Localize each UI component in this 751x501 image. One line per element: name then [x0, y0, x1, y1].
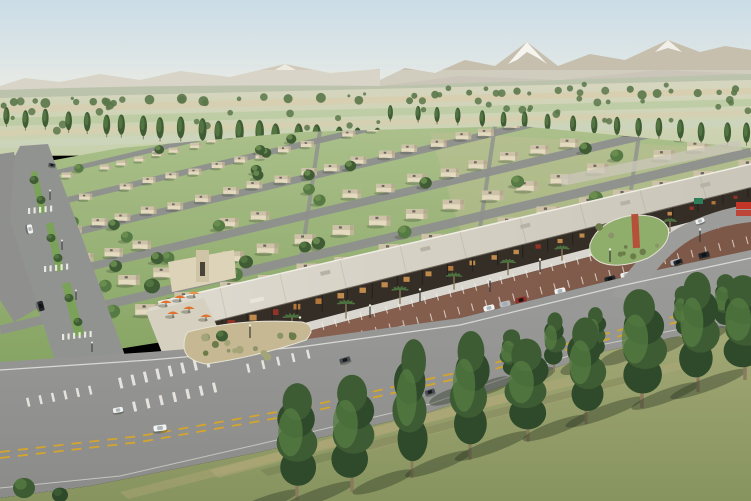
poplar-highlight	[388, 106, 391, 115]
distant-tree	[71, 97, 74, 100]
distant-tree	[552, 110, 560, 118]
villa-shade	[287, 176, 290, 183]
villa-shadow	[99, 169, 108, 171]
roof-unit	[228, 188, 230, 190]
treeline-tree	[513, 87, 520, 94]
villa-shade	[444, 140, 447, 147]
tree-highlight	[590, 192, 598, 199]
shrub	[232, 348, 237, 353]
roof-unit	[138, 242, 141, 244]
roof-unit	[125, 276, 128, 278]
tree-highlight	[622, 315, 648, 364]
median-tree-highlight	[47, 234, 52, 239]
palm-frond	[338, 303, 346, 304]
distant-tree	[376, 120, 380, 124]
crosswalk-bar	[50, 206, 52, 212]
shop-light	[690, 206, 694, 209]
poplar-highlight	[23, 112, 27, 123]
treeline-tree	[653, 89, 662, 98]
villa-shadow	[151, 156, 160, 158]
roof-unit	[146, 178, 148, 180]
roof-unit	[566, 140, 569, 142]
roof-unit	[429, 235, 432, 237]
villa-shadow	[118, 189, 129, 192]
distant-tree	[96, 108, 104, 116]
distant-tree	[11, 116, 15, 120]
distant-tree	[446, 85, 452, 91]
crosswalk-bar	[34, 207, 36, 213]
distant-tree	[593, 99, 601, 107]
umbrella-shadow	[181, 310, 191, 314]
villa-shade	[136, 275, 140, 285]
poplar-highlight	[636, 119, 640, 130]
villa-shadow	[233, 162, 244, 165]
poplar-highlight	[178, 118, 183, 132]
shrub	[630, 253, 636, 259]
villa-shade	[414, 145, 417, 152]
tree-highlight	[256, 145, 262, 150]
poplar-highlight	[725, 124, 729, 136]
villa-shade	[105, 218, 108, 225]
distant-tree	[335, 115, 341, 121]
distant-tree	[640, 99, 645, 104]
lamp-head	[91, 342, 93, 344]
villa-shade	[199, 143, 201, 148]
roof-unit	[505, 153, 508, 155]
distant-tree	[421, 107, 426, 112]
distant-tree	[28, 108, 35, 115]
villa-shadow	[116, 284, 134, 288]
distant-tree	[484, 86, 489, 91]
roof-unit	[160, 269, 163, 271]
villa-shadow	[273, 182, 286, 185]
roof-unit	[386, 245, 389, 247]
lamp-head	[489, 278, 491, 280]
villa-shade	[364, 157, 367, 164]
umbrella-shadow	[186, 295, 196, 299]
distant-tree	[555, 87, 562, 94]
distant-tree	[73, 99, 79, 105]
distant-tree	[347, 94, 350, 97]
villa-shadow	[299, 147, 310, 150]
lawn-tree-highlight	[240, 256, 248, 263]
villa-shadow	[130, 248, 145, 251]
shrub	[203, 350, 209, 356]
island-tree-highlight	[217, 331, 224, 337]
villa-shade	[575, 139, 578, 147]
roof-unit	[489, 192, 492, 194]
car-roof	[157, 426, 163, 431]
roof-unit	[406, 146, 408, 148]
villa-shade	[392, 151, 395, 158]
poplar-highlight	[435, 108, 438, 117]
roof-unit	[339, 226, 342, 228]
poplar-highlight	[199, 120, 204, 134]
villa-shadow	[528, 153, 543, 156]
villa-shade	[178, 148, 180, 153]
treeline-tree	[406, 97, 413, 104]
shop-light	[447, 266, 453, 271]
villa-shade	[236, 187, 239, 194]
tree-highlight	[75, 164, 80, 169]
roof-unit	[146, 208, 148, 210]
crosswalk-bar	[84, 332, 86, 338]
villa-shade	[109, 165, 111, 170]
distant-tree	[194, 119, 200, 125]
villa-shadow	[466, 168, 481, 171]
umbrella-shadow	[198, 318, 208, 322]
shrub	[253, 346, 258, 351]
crosswalk-bar	[90, 331, 92, 337]
distant-tree	[715, 104, 721, 110]
villa-shadow	[133, 161, 142, 163]
villa-shadow	[400, 152, 413, 155]
distant-tree	[606, 118, 612, 124]
roof-unit	[96, 219, 98, 221]
villa-shadow	[377, 158, 390, 161]
roof-unit	[329, 165, 331, 167]
tree-highlight	[420, 178, 427, 184]
distant-tree	[304, 125, 310, 131]
villa-shadow	[341, 136, 352, 139]
shrub	[624, 245, 628, 249]
tree-highlight	[512, 176, 519, 183]
shrub	[289, 332, 297, 340]
treeline-tree	[466, 90, 472, 96]
treeline-tree	[627, 86, 634, 93]
villa-shadow	[322, 171, 335, 174]
umbrella-shadow	[165, 315, 175, 319]
tree-highlight	[214, 220, 221, 226]
villa-shade	[468, 132, 471, 139]
roof-unit	[384, 152, 386, 154]
villa-shadow	[115, 165, 124, 167]
roof-unit	[557, 175, 560, 177]
shrub	[261, 350, 268, 357]
crosswalk-bar	[68, 333, 70, 339]
shop-light	[558, 239, 563, 243]
palm-frond	[447, 275, 454, 276]
distant-tree	[728, 100, 734, 106]
roof-unit	[169, 174, 171, 176]
poplar-highlight	[545, 115, 549, 126]
tree-highlight	[287, 135, 293, 140]
roof-unit	[124, 185, 126, 187]
villa-shade	[125, 161, 127, 166]
roof-unit	[110, 249, 113, 251]
villa-shadow	[102, 256, 117, 259]
tree-highlight	[725, 298, 751, 341]
villa-shadow	[205, 142, 214, 144]
shop-light	[536, 244, 541, 248]
tree-highlight	[152, 253, 159, 259]
distant-tree	[486, 102, 492, 108]
roof-unit	[382, 185, 385, 187]
crosswalk-bar	[44, 266, 46, 272]
distant-tree	[669, 118, 674, 123]
villa-shadow	[330, 234, 348, 238]
treeline-tree	[694, 89, 702, 97]
roof-unit	[346, 132, 348, 134]
roof-unit	[355, 158, 357, 160]
distant-tree	[567, 85, 573, 91]
villa-shadow	[254, 158, 265, 161]
red-banner-sign	[736, 210, 751, 216]
villa-shadow	[60, 177, 69, 179]
poplar-highlight	[455, 109, 458, 119]
shrub	[595, 223, 603, 231]
villa-shade	[491, 129, 494, 136]
roof-unit	[449, 201, 452, 203]
tree-highlight	[252, 165, 258, 170]
shop-light	[359, 288, 365, 293]
poplar-highlight	[592, 117, 596, 128]
corner-bush-highlight	[53, 488, 62, 496]
crosswalk-bar	[28, 208, 30, 214]
villa-shadow	[210, 168, 221, 171]
poplar-highlight	[522, 113, 526, 123]
villa-shade	[456, 169, 459, 177]
villa-shadow	[90, 225, 103, 228]
corner-bush-highlight	[15, 479, 27, 490]
tree-highlight	[304, 170, 310, 176]
shop-light	[425, 271, 431, 276]
roof-unit	[544, 207, 547, 209]
roof-unit	[305, 142, 307, 144]
villa-shade	[350, 225, 354, 235]
roof-unit	[256, 212, 259, 214]
villa-shade	[545, 145, 548, 153]
villa-shade	[180, 202, 183, 209]
treeline-tree	[40, 98, 50, 108]
villa-shade	[289, 146, 291, 152]
lamp-head	[249, 324, 251, 326]
crosswalk-bar	[79, 332, 81, 338]
treeline-tree	[637, 90, 646, 99]
tree-highlight	[453, 359, 475, 412]
crosswalk-bar	[62, 334, 64, 340]
villa-shade	[484, 160, 487, 168]
poplar-highlight	[571, 117, 575, 128]
shop-light	[381, 282, 387, 287]
crosswalk-bar	[50, 265, 52, 271]
tree-highlight	[155, 145, 160, 150]
roof-unit	[446, 170, 449, 172]
shop-light	[712, 201, 716, 204]
poplar-highlight	[416, 107, 419, 116]
distant-tree	[668, 89, 673, 94]
villa-shade	[148, 241, 151, 249]
villa-shadow	[164, 178, 175, 181]
pole-head	[419, 288, 421, 290]
poplar-highlight	[66, 113, 70, 125]
crosswalk-bar	[45, 206, 47, 212]
villa-shade	[515, 152, 518, 160]
villa-shadow	[139, 213, 152, 216]
villa-shadow	[141, 183, 152, 186]
poplar-highlight	[4, 109, 8, 120]
poplar-highlight	[84, 114, 88, 126]
roof-unit	[412, 210, 415, 212]
shrub	[639, 249, 646, 256]
roof-unit	[474, 161, 477, 163]
villa-shade	[235, 218, 238, 226]
green-sign	[694, 198, 703, 204]
roof-unit	[225, 219, 228, 221]
tree-highlight	[278, 408, 302, 456]
roof-unit	[142, 305, 145, 307]
villa-shadow	[374, 192, 389, 195]
distant-tree	[475, 97, 482, 104]
villa-shadow	[221, 194, 234, 197]
crosswalk-bar	[55, 265, 57, 271]
tree-highlight	[122, 232, 129, 238]
villa-shade	[500, 191, 504, 201]
shrub	[655, 244, 659, 248]
distant-tree	[260, 93, 268, 101]
tree-highlight	[304, 184, 311, 190]
villa-shade	[222, 162, 224, 168]
treeline-tree	[731, 90, 737, 96]
poplar-highlight	[678, 121, 682, 133]
poplar-highlight	[215, 122, 220, 136]
villa-shade	[130, 184, 132, 190]
roof-unit	[83, 195, 85, 197]
villa-shadow	[440, 209, 458, 213]
shop-light	[249, 315, 256, 321]
villa-shadow	[193, 202, 206, 205]
roof-unit	[436, 141, 438, 143]
villa-shadow	[78, 199, 89, 202]
tower-window	[200, 262, 205, 276]
villa-shadow	[245, 188, 258, 191]
poplar-highlight	[104, 116, 108, 128]
villa-shade	[460, 200, 464, 210]
treeline-tree	[177, 94, 187, 104]
palm-frond	[501, 262, 508, 263]
villa-shade	[423, 209, 427, 219]
villa-shadow	[514, 190, 532, 194]
shop-light	[668, 212, 672, 216]
villa-shadow	[454, 139, 467, 142]
tree-highlight	[396, 369, 416, 426]
crosswalk-bar	[73, 333, 75, 339]
distant-tree	[286, 110, 294, 118]
lamp-head	[61, 240, 63, 242]
treeline-tree	[411, 93, 417, 99]
villa-shade	[208, 195, 211, 202]
poplar-highlight	[118, 116, 122, 129]
tree-highlight	[509, 361, 534, 404]
palm-frond	[664, 220, 670, 221]
poplar-highlight	[501, 113, 504, 123]
roof-unit	[301, 235, 304, 237]
umbrella-shadow	[158, 304, 168, 308]
villa-shade	[391, 184, 394, 192]
poplar-highlight	[614, 118, 618, 129]
tree-highlight	[314, 195, 321, 201]
roof-unit	[263, 244, 266, 246]
distant-tree	[32, 98, 38, 104]
villa-shadow	[365, 131, 376, 134]
lamp-head	[699, 228, 701, 230]
roof-unit	[746, 161, 749, 163]
pole-head	[299, 316, 301, 318]
tree-highlight	[110, 261, 117, 267]
tree-highlight	[544, 325, 557, 350]
tree-highlight	[680, 298, 703, 347]
distant-tree	[576, 96, 582, 102]
distant-tree	[503, 105, 510, 112]
distant-tree	[745, 107, 751, 114]
villa-shadow	[405, 182, 420, 185]
roof-unit	[172, 203, 174, 205]
villa-shadow	[403, 218, 421, 222]
villa-shade	[154, 207, 157, 214]
shop-light	[403, 277, 409, 282]
poplar-highlight	[157, 119, 162, 132]
villa-shade	[353, 131, 355, 137]
shop-light	[514, 250, 519, 254]
poplar-highlight	[236, 122, 241, 137]
roof-unit	[375, 217, 378, 219]
villa-shadow	[366, 225, 384, 229]
roof-unit	[693, 142, 696, 144]
crosswalk-bar	[61, 264, 63, 270]
villa-shadow	[558, 147, 573, 150]
tree-highlight	[253, 170, 259, 176]
villa-shadow	[498, 160, 513, 163]
distant-tree	[493, 90, 500, 97]
villa-shadow	[249, 219, 264, 222]
villa-shade	[259, 181, 262, 188]
distant-tree	[716, 90, 722, 96]
treeline-tree	[89, 98, 97, 106]
palm-frond	[392, 289, 400, 290]
villa-shade	[127, 214, 130, 221]
treeline-tree	[431, 91, 439, 99]
poplar-highlight	[43, 110, 47, 121]
treeline-tree	[316, 93, 326, 103]
distant-tree	[237, 97, 242, 102]
villa-shade	[90, 253, 93, 261]
lawn-tree-highlight	[145, 279, 154, 287]
villa-shadow	[167, 153, 176, 155]
median-tree-highlight	[54, 254, 59, 259]
villa-shade	[70, 173, 72, 178]
shrub	[608, 233, 614, 239]
villa-shade	[266, 211, 269, 219]
median-tree-highlight	[74, 318, 79, 323]
villa-shade	[120, 248, 123, 256]
roof-unit	[348, 191, 351, 193]
villa-shade	[534, 181, 538, 191]
villa-shade	[387, 216, 391, 226]
roof-unit	[216, 163, 218, 165]
distant-tree	[606, 100, 611, 105]
tree-highlight	[580, 143, 587, 149]
villa-shade	[337, 164, 340, 171]
villa-shadow	[502, 127, 515, 130]
villa-shade	[90, 194, 92, 200]
crosswalk-bar	[66, 264, 68, 270]
tree-highlight	[346, 161, 352, 167]
shrub	[622, 251, 626, 255]
palm-frond	[555, 248, 562, 249]
villa-shadow	[476, 136, 489, 139]
villa-shadow	[189, 148, 198, 150]
villa-shadow	[340, 197, 355, 200]
